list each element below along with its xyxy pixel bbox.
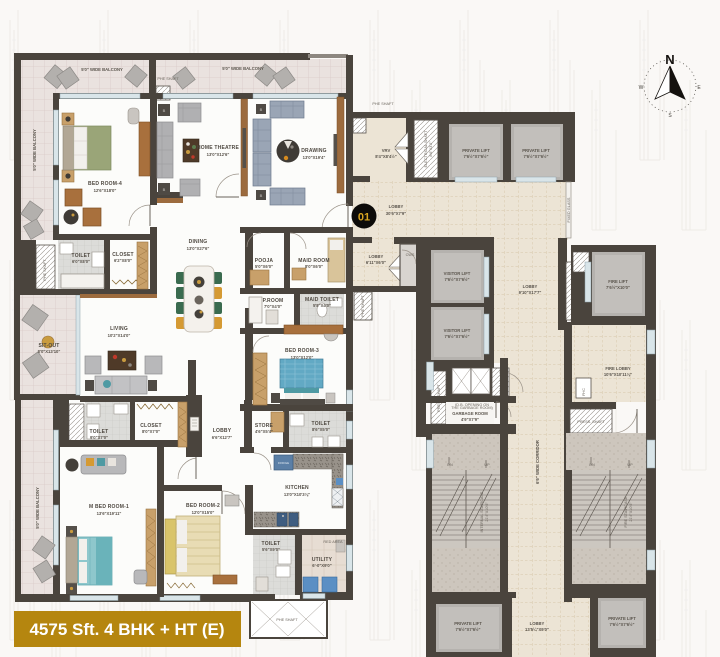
svg-text:VISITOR LIFT: VISITOR LIFT: [444, 271, 471, 276]
svg-text:LOBBY: LOBBY: [369, 254, 384, 259]
svg-text:5'0" WIDE BALCONY: 5'0" WIDE BALCONY: [81, 67, 123, 72]
svg-text:THE GARBAGE ROOM): THE GARBAGE ROOM): [451, 406, 493, 410]
svg-text:7'0"X4'0": 7'0"X4'0": [264, 304, 282, 309]
svg-text:FIRE LOBBY: FIRE LOBBY: [605, 366, 631, 371]
svg-text:21'4"X10'6": 21'4"X10'6": [485, 502, 489, 522]
svg-text:ELECTRICAL SHAFT: ELECTRICAL SHAFT: [424, 130, 428, 167]
svg-text:CWS: CWS: [406, 253, 415, 257]
svg-text:9'0"X7'0": 9'0"X7'0": [90, 435, 108, 440]
svg-text:8'6"X3'2": 8'6"X3'2": [429, 141, 433, 157]
svg-text:LOBBY: LOBBY: [530, 621, 545, 626]
svg-text:6'11"X6'0": 6'11"X6'0": [366, 260, 386, 265]
svg-text:DN: DN: [447, 463, 453, 467]
svg-text:13'0"X19'4": 13'0"X19'4": [303, 155, 326, 160]
svg-text:W: W: [639, 85, 644, 91]
svg-text:13'0"X12'6": 13'0"X12'6": [207, 152, 230, 157]
svg-text:UP: UP: [484, 463, 490, 467]
svg-text:GARBAGE ROOM: GARBAGE ROOM: [452, 411, 488, 416]
svg-text:5'8"X4'0": 5'8"X4'0": [313, 303, 331, 308]
svg-text:LOBBY: LOBBY: [523, 284, 538, 289]
svg-text:FIRE STAIRCASE: FIRE STAIRCASE: [624, 496, 628, 527]
svg-text:BED ROOM-4: BED ROOM-4: [88, 181, 122, 187]
svg-text:PHE SHAFT: PHE SHAFT: [276, 618, 298, 622]
svg-text:6'6" WIDE CORRIDOR: 6'6" WIDE CORRIDOR: [535, 440, 540, 484]
svg-text:12'6"X18'0": 12'6"X18'0": [94, 188, 117, 193]
svg-text:6'2"X8'0": 6'2"X8'0": [114, 258, 132, 263]
svg-text:LIVING: LIVING: [110, 326, 128, 332]
svg-text:7'6½"X7'6½": 7'6½"X7'6½": [444, 334, 469, 339]
svg-text:30'6"X7'9": 30'6"X7'9": [386, 211, 406, 216]
svg-text:5'6"X9'0": 5'6"X9'0": [262, 547, 280, 552]
svg-text:DN: DN: [589, 463, 595, 467]
svg-text:DINING: DINING: [189, 239, 208, 245]
svg-text:PHE SHAFT: PHE SHAFT: [157, 77, 179, 81]
svg-text:FRIDGE: FRIDGE: [278, 461, 289, 465]
svg-text:8'6"X5'0": 8'6"X5'0": [312, 427, 330, 432]
svg-text:12'0"X15'0": 12'0"X15'0": [192, 510, 215, 515]
svg-text:13'6"X19'11": 13'6"X19'11": [97, 511, 122, 516]
svg-text:5'0" WIDE BALCONY: 5'0" WIDE BALCONY: [35, 487, 40, 529]
svg-text:6'0"X8'0": 6'0"X8'0": [72, 259, 90, 264]
svg-text:13'0"X10'3⅛": 13'0"X10'3⅛": [284, 492, 310, 497]
svg-text:HOME THEATRE: HOME THEATRE: [197, 145, 239, 151]
svg-text:B: B: [163, 187, 166, 192]
svg-text:PRIVATE LIFT: PRIVATE LIFT: [462, 148, 490, 153]
svg-text:UP: UP: [627, 463, 633, 467]
svg-text:RED AREA: RED AREA: [323, 540, 343, 544]
svg-text:01: 01: [358, 212, 370, 224]
svg-text:21'4"X10'6": 21'4"X10'6": [629, 502, 633, 522]
svg-text:VRV: VRV: [382, 148, 391, 153]
svg-text:8'4"X8'4½": 8'4"X8'4½": [375, 154, 397, 159]
svg-text:5'0"X6'0": 5'0"X6'0": [255, 264, 273, 269]
svg-text:B: B: [260, 107, 263, 112]
svg-text:7'6½"X7'6½": 7'6½"X7'6½": [444, 277, 469, 282]
svg-text:8'0"X13'10": 8'0"X13'10": [38, 349, 61, 354]
svg-text:7'6½"X7'6½": 7'6½"X7'6½": [455, 627, 480, 632]
svg-text:BED ROOM-3: BED ROOM-3: [285, 348, 319, 354]
svg-text:7'6½"X7'6½": 7'6½"X7'6½": [609, 622, 634, 627]
svg-text:6'6"X12'7": 6'6"X12'7": [212, 435, 232, 440]
svg-text:4'9"X7'9": 4'9"X7'9": [461, 417, 479, 422]
svg-text:LOBBY: LOBBY: [389, 204, 404, 209]
svg-text:PRIVATE LIFT: PRIVATE LIFT: [522, 148, 550, 153]
svg-text:13'0"X27'6": 13'0"X27'6": [187, 246, 210, 251]
svg-text:PHE SHAFT: PHE SHAFT: [361, 295, 365, 317]
svg-text:7'6½"X10'0": 7'6½"X10'0": [606, 285, 630, 290]
svg-text:B: B: [163, 108, 166, 113]
svg-text:8'0"X6'0": 8'0"X6'0": [305, 264, 323, 269]
svg-text:5'0" WIDE BALCONY: 5'0" WIDE BALCONY: [222, 66, 264, 71]
svg-text:LOBBY: LOBBY: [213, 428, 232, 434]
svg-text:10'6"X10'11⅛": 10'6"X10'11⅛": [604, 372, 632, 377]
svg-text:PRIVATE LIFT: PRIVATE LIFT: [454, 621, 482, 626]
svg-text:5'0" WIDE BALCONY: 5'0" WIDE BALCONY: [32, 129, 37, 171]
svg-text:7'6½"X7'6½": 7'6½"X7'6½": [523, 154, 548, 159]
svg-text:FIRE LIFT: FIRE LIFT: [608, 279, 628, 284]
svg-text:9'10"X17'7": 9'10"X17'7": [519, 290, 542, 295]
svg-text:FHC: FHC: [582, 388, 586, 396]
svg-text:PHE SHAFT: PHE SHAFT: [372, 102, 394, 106]
svg-text:KITCHEN: KITCHEN: [285, 485, 309, 491]
svg-text:13'5¼"X9'0": 13'5¼"X9'0": [525, 627, 549, 632]
svg-text:M BED ROOM-1: M BED ROOM-1: [89, 504, 129, 510]
svg-text:B: B: [260, 193, 263, 198]
svg-text:INTERNAL STAIRCASE: INTERNAL STAIRCASE: [480, 491, 484, 532]
svg-text:4'6"X5'4": 4'6"X5'4": [255, 429, 273, 434]
svg-text:BED ROOM-2: BED ROOM-2: [186, 503, 220, 509]
svg-text:10'2"X14'0": 10'2"X14'0": [108, 333, 131, 338]
svg-text:N: N: [665, 52, 674, 67]
svg-text:FIXED GLASS: FIXED GLASS: [567, 197, 571, 222]
svg-text:PRESS. SHAFT: PRESS. SHAFT: [577, 420, 605, 424]
svg-text:DRAWING: DRAWING: [301, 148, 327, 154]
svg-text:4575 Sft. 4 BHK + HT (E): 4575 Sft. 4 BHK + HT (E): [29, 620, 224, 639]
svg-text:7'6½"X7'6½": 7'6½"X7'6½": [463, 154, 488, 159]
svg-text:6'-0"X9'0": 6'-0"X9'0": [312, 563, 331, 568]
svg-text:8'0"X7'0": 8'0"X7'0": [142, 429, 160, 434]
svg-text:PHE SHAFT: PHE SHAFT: [43, 259, 47, 281]
svg-text:13'0"X12'0": 13'0"X12'0": [291, 355, 314, 360]
svg-text:PRIVATE LIFT: PRIVATE LIFT: [608, 616, 636, 621]
svg-text:VISITOR LIFT: VISITOR LIFT: [444, 328, 471, 333]
